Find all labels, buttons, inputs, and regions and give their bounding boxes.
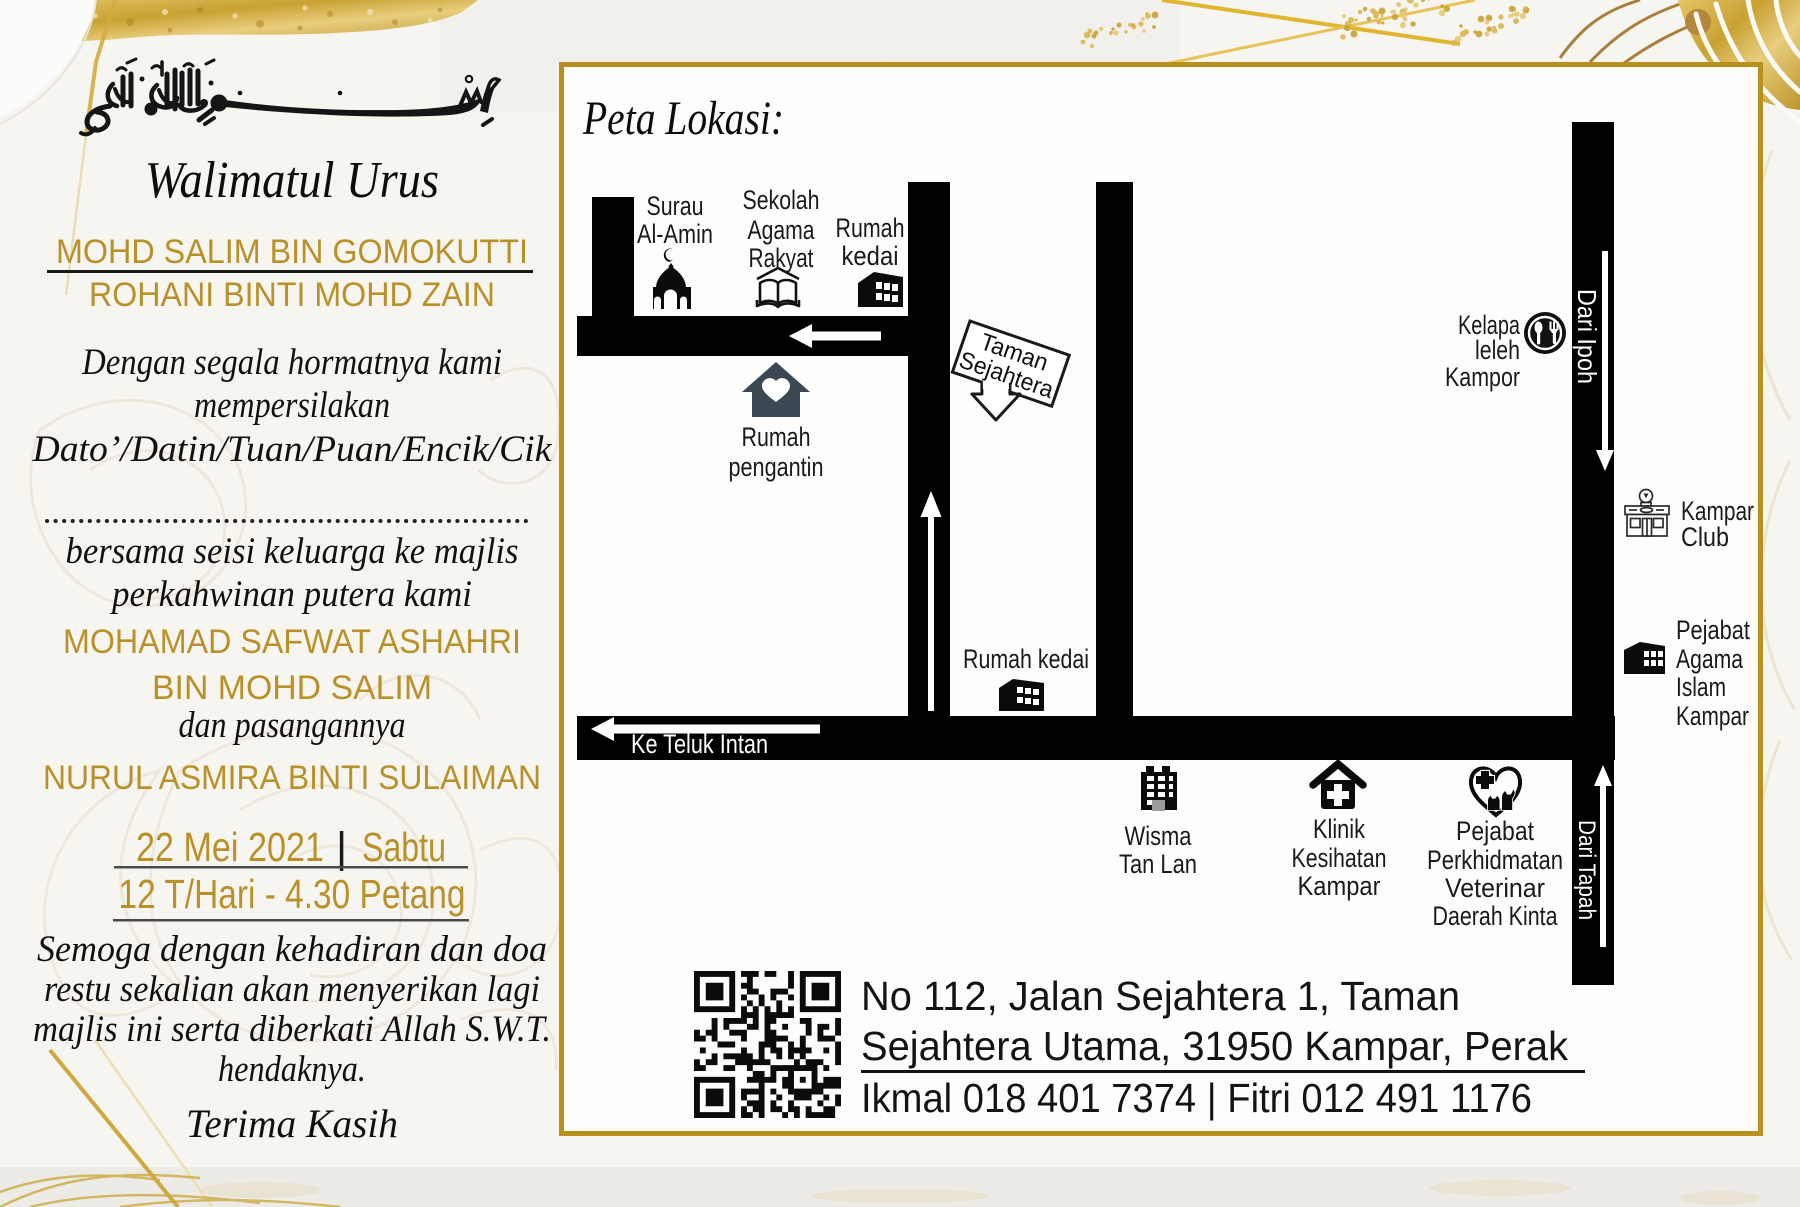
- svg-text:Sekolah: Sekolah: [743, 185, 820, 215]
- svg-text:Ikmal 018 401 7374 | Fitri 012: Ikmal 018 401 7374 | Fitri 012 491 1176: [861, 1075, 1532, 1121]
- svg-text:bersama seisi keluarga ke majl: bersama seisi keluarga ke majlis: [66, 531, 519, 572]
- svg-text:MOHAMAD SAFWAT ASHAHRI: MOHAMAD SAFWAT ASHAHRI: [63, 623, 521, 661]
- svg-text:Dari Tapah: Dari Tapah: [1573, 820, 1600, 920]
- svg-text:ROHANI BINTI MOHD ZAIN: ROHANI BINTI MOHD ZAIN: [89, 276, 495, 314]
- svg-text:MOHD SALIM BIN GOMOKUTTI: MOHD SALIM BIN GOMOKUTTI: [56, 233, 528, 271]
- svg-text:pengantin: pengantin: [729, 452, 824, 482]
- svg-text:restu sekalian akan menyerikan: restu sekalian akan menyerikan lagi: [44, 969, 540, 1010]
- svg-text:BIN MOHD SALIM: BIN MOHD SALIM: [152, 669, 432, 707]
- svg-text:Dengan segala hormatnya kami: Dengan segala hormatnya kami: [81, 342, 502, 383]
- svg-text:Dari Ipoh: Dari Ipoh: [1572, 289, 1602, 384]
- svg-text:No 112, Jalan Sejahtera 1, Tam: No 112, Jalan Sejahtera 1, Taman: [861, 973, 1460, 1019]
- svg-text:Agama: Agama: [1676, 644, 1744, 674]
- svg-text:22 Mei 2021: 22 Mei 2021: [136, 824, 324, 870]
- svg-text:Pejabat: Pejabat: [1676, 615, 1750, 645]
- svg-text:12 T/Hari - 4.30 Petang: 12 T/Hari - 4.30 Petang: [119, 871, 466, 917]
- svg-text:hendaknya.: hendaknya.: [218, 1049, 366, 1090]
- svg-text:mempersilakan: mempersilakan: [194, 385, 390, 426]
- svg-text:Surau: Surau: [647, 191, 704, 221]
- svg-text:Islam: Islam: [1676, 672, 1726, 702]
- svg-text:Veterinar: Veterinar: [1445, 873, 1545, 903]
- svg-text:perkahwinan putera kami: perkahwinan putera kami: [109, 574, 472, 615]
- svg-text:Ke Teluk Intan: Ke Teluk Intan: [631, 729, 768, 759]
- svg-text:Dato’/Datin/Tuan/Puan/Encik/Ci: Dato’/Datin/Tuan/Puan/Encik/Cik: [31, 429, 552, 470]
- svg-text:Peta Lokasi:: Peta Lokasi:: [582, 92, 784, 145]
- svg-text:Rumah kedai: Rumah kedai: [963, 644, 1089, 674]
- svg-text:Semoga dengan kehadiran dan do: Semoga dengan kehadiran dan doa: [37, 929, 547, 970]
- svg-text:Klinik: Klinik: [1313, 814, 1365, 844]
- svg-text:NURUL ASMIRA BINTI SULAIMAN: NURUL ASMIRA BINTI SULAIMAN: [43, 759, 541, 797]
- svg-text:Daerah Kinta: Daerah Kinta: [1433, 901, 1559, 931]
- svg-text:kedai: kedai: [842, 241, 899, 271]
- svg-text:Tan Lan: Tan Lan: [1119, 849, 1197, 879]
- svg-text:Sabtu: Sabtu: [362, 824, 446, 870]
- svg-text:Rumah: Rumah: [836, 213, 905, 243]
- svg-text:Kampar: Kampar: [1676, 701, 1749, 731]
- svg-text:Pejabat: Pejabat: [1456, 816, 1534, 846]
- svg-text:Kampar: Kampar: [1298, 871, 1381, 901]
- svg-text:dan pasangannya: dan pasangannya: [179, 705, 406, 746]
- svg-text:|: |: [336, 824, 347, 872]
- svg-text:Sejahtera Utama, 31950 Kampar,: Sejahtera Utama, 31950 Kampar, Perak: [861, 1023, 1568, 1069]
- svg-text:leleh: leleh: [1475, 335, 1520, 365]
- svg-text:Club: Club: [1681, 522, 1729, 552]
- svg-text:Agama: Agama: [748, 215, 816, 245]
- svg-text:Terima Kasih: Terima Kasih: [186, 1101, 398, 1146]
- svg-text:Perkhidmatan: Perkhidmatan: [1427, 845, 1563, 875]
- svg-text:Walimatul Urus: Walimatul Urus: [145, 152, 439, 209]
- svg-text:Wisma: Wisma: [1125, 821, 1193, 851]
- svg-text:Kesihatan: Kesihatan: [1292, 843, 1387, 873]
- svg-text:Al-Amin: Al-Amin: [637, 219, 713, 249]
- svg-text:Rumah: Rumah: [742, 422, 811, 452]
- svg-text:majlis ini serta diberkati All: majlis ini serta diberkati Allah S.W.T.: [33, 1009, 551, 1050]
- svg-text:Kampor: Kampor: [1445, 362, 1520, 392]
